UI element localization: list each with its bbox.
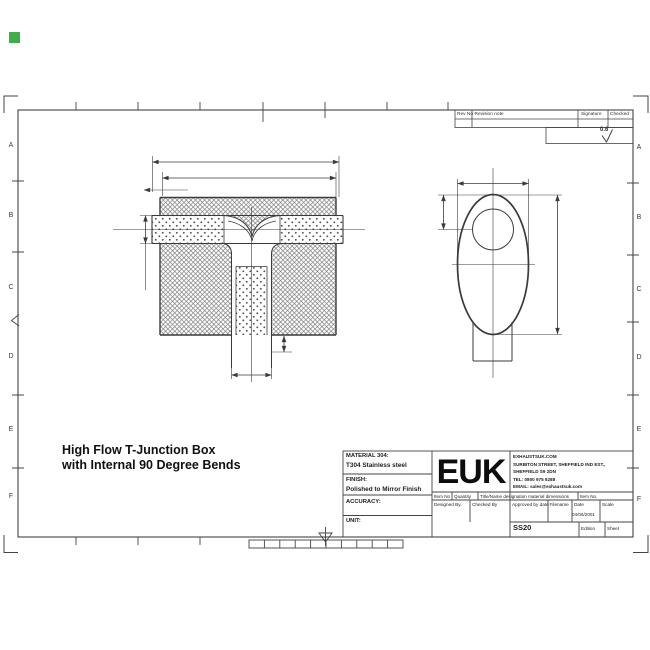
company-address-block: EXHAUSTSUK.COM SURBITON STREET, SHEFFIEL… [513, 453, 605, 491]
drawing-title-line2: with Internal 90 Degree Bends [62, 458, 241, 473]
drawing-title-line1: High Flow T-Junction Box [62, 443, 241, 458]
drawing-title: High Flow T-Junction Box with Internal 9… [62, 443, 241, 473]
engineering-drawing-sheet: { "drawing_title": { "line1": "High Flow… [0, 0, 650, 650]
company-logo: EUK [432, 451, 510, 492]
item-no-header: Item No [434, 494, 450, 499]
designation-header: Title/Name designation material dimensio… [480, 494, 569, 499]
checked-header: Checked [610, 112, 629, 117]
side-view-dimensions [438, 179, 562, 335]
zone-letter-left-b: B [6, 212, 16, 219]
zone-letter-left-e: E [6, 426, 16, 433]
quantity-header: Quantity [454, 494, 471, 499]
zone-letter-right-c: C [634, 286, 644, 293]
finish-label: FINISH: [346, 477, 367, 483]
date-value: 04/06/2001 [572, 512, 595, 517]
scale-header: Scale [602, 502, 614, 507]
item-no2-header: Item No. [580, 494, 597, 499]
company-line: TEL: 0800 975 9288 [513, 476, 605, 484]
zone-letter-right-d: D [634, 354, 644, 361]
company-line: EXHAUSTSUK.COM [513, 453, 605, 461]
zone-letter-left-d: D [6, 353, 16, 360]
rev-no-header: Rev No [457, 112, 473, 117]
zone-letter-left-a: A [6, 142, 16, 149]
material-value: T304 Stainless steel [346, 462, 407, 469]
surface-finish-box [546, 128, 633, 144]
green-marker-square [9, 32, 20, 43]
company-line: EMAIL: sales@exhaustsuk.com [513, 483, 605, 491]
zone-letter-left-c: C [6, 284, 16, 291]
checked-by-header: Checked By [472, 502, 497, 507]
filename-header: Filename [550, 502, 569, 507]
signature-header: Signature [581, 112, 602, 117]
drawing-number: SS20 [513, 523, 531, 532]
front-section-view [113, 156, 365, 382]
zone-letter-right-a: A [634, 144, 644, 151]
surface-finish-value: 0.6 [600, 127, 608, 133]
sheet-label: Sheet [607, 526, 619, 531]
company-line: SHEFFIELD S9 2DN [513, 468, 605, 476]
drawing-canvas [0, 0, 650, 650]
date-header: Date [574, 502, 584, 507]
zone-letter-right-f: F [634, 496, 644, 503]
designed-by-header: Designed By. [434, 502, 462, 507]
scale-bar [249, 540, 403, 548]
accuracy-label: ACCURACY: [346, 499, 381, 505]
revision-note-header: Revision note [475, 112, 504, 117]
material-label: MATERIAL 304: [346, 453, 389, 459]
finish-value: Polished to Mirror Finish [346, 486, 421, 493]
company-line: SURBITON STREET, SHEFFIELD IND EST., [513, 461, 605, 469]
side-end-view [438, 168, 562, 378]
edition-label: Edition [581, 526, 595, 531]
approved-by-header: Approved by date [512, 502, 549, 507]
zone-letter-left-f: F [6, 493, 16, 500]
zone-letter-right-e: E [634, 426, 644, 433]
zone-letter-right-b: B [634, 214, 644, 221]
unit-label: UNIT: [346, 518, 361, 524]
